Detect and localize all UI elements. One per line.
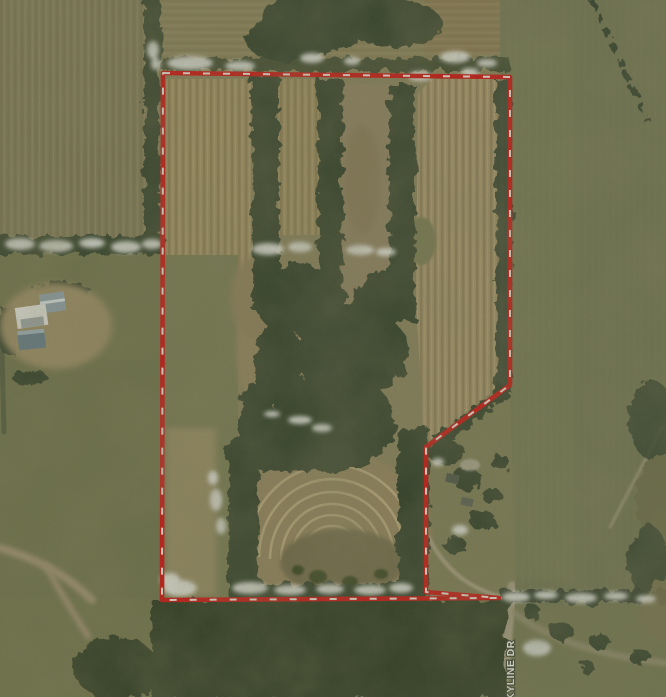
aerial-map: SKYLINE DR <box>0 0 666 697</box>
grain-overlay <box>0 0 666 697</box>
